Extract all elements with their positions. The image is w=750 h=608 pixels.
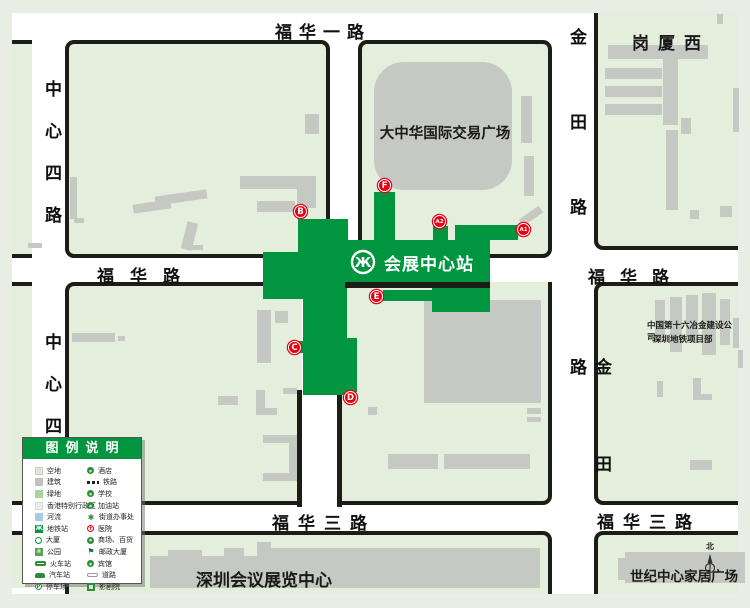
gas-station-icon xyxy=(87,502,94,509)
cinema-icon xyxy=(87,583,95,591)
street-label-jintian-lu-north: 金田路 xyxy=(564,28,589,283)
building xyxy=(605,86,662,97)
station-south-widening xyxy=(347,338,357,392)
station-east-arm-a1 xyxy=(455,225,518,240)
exit-a1-badge: A1 xyxy=(517,223,530,236)
legend-item: 酒店 xyxy=(87,465,134,477)
legend-item: 铁路 xyxy=(87,477,134,489)
legend-item-label: 宾馆 xyxy=(98,559,112,569)
building xyxy=(663,45,678,125)
building xyxy=(521,96,532,143)
building xyxy=(657,381,663,397)
exit-b-badge: B xyxy=(294,205,307,218)
shenzhen-metro-logo-icon: Ж xyxy=(350,249,376,275)
building xyxy=(693,394,712,400)
street-label-zhongxin-si-lu-north: 中心四路 xyxy=(39,80,64,248)
tower-icon xyxy=(35,537,42,544)
vacant-land-icon xyxy=(35,467,43,475)
legend-item-label: 酒店 xyxy=(98,466,112,476)
building xyxy=(368,407,377,415)
place-label-gangxia-west: 岗厦西 xyxy=(632,29,710,54)
building xyxy=(263,473,297,481)
post-building-icon xyxy=(87,548,95,556)
exit-c-badge: C xyxy=(288,341,301,354)
legend-item-label: 街道办事处 xyxy=(99,512,134,522)
legend-item: 商场、百货 xyxy=(87,535,134,547)
building xyxy=(168,550,202,558)
legend-item-label: 河流 xyxy=(47,512,61,522)
legend-item-label: 建筑 xyxy=(47,477,61,487)
building xyxy=(717,14,723,24)
legend-item-label: 学校 xyxy=(98,489,112,499)
building xyxy=(690,210,699,219)
building xyxy=(268,548,540,558)
legend-item: 道路 xyxy=(87,569,134,581)
mall-icon xyxy=(87,537,94,544)
building xyxy=(444,454,530,469)
legend-item-label: 加油站 xyxy=(98,501,119,511)
building xyxy=(257,310,271,363)
building xyxy=(605,104,662,115)
block-mideast xyxy=(594,282,738,505)
building xyxy=(666,130,678,210)
station-name: 会展中心站 xyxy=(384,250,474,275)
compass: 北 xyxy=(700,541,720,586)
building xyxy=(275,311,288,323)
building xyxy=(424,300,541,403)
railway-station-icon xyxy=(35,561,46,566)
building xyxy=(618,558,626,580)
exit-d-badge: D xyxy=(344,391,357,404)
legend-title: 图例说明 xyxy=(23,438,141,459)
hospital-icon xyxy=(87,525,94,532)
building xyxy=(527,408,541,414)
station-southeast-lobe xyxy=(432,284,490,312)
station-label-group: Ж 会展中心站 xyxy=(350,249,474,275)
building xyxy=(720,206,732,217)
place-label-plaza: 大中华国际交易广场 xyxy=(378,122,512,143)
metro-station-icon xyxy=(35,525,43,533)
building xyxy=(733,88,739,132)
legend-item-label: 火车站 xyxy=(50,559,71,569)
exit-e-badge: E xyxy=(370,290,383,303)
station-stub-e xyxy=(383,290,432,301)
building xyxy=(605,68,662,79)
building xyxy=(283,388,297,394)
parking-icon xyxy=(35,583,42,590)
legend-item: 街道办事处 xyxy=(87,511,134,523)
legend-item-label: 医院 xyxy=(98,524,112,534)
block-left-strip-top xyxy=(12,40,32,258)
compass-needle-icon xyxy=(702,552,718,582)
bus-station-icon xyxy=(35,573,45,578)
building xyxy=(72,333,115,342)
curb-center-road-east xyxy=(337,390,342,507)
guesthouse-icon xyxy=(87,560,94,567)
school-icon xyxy=(87,490,94,497)
legend-item-label: 公园 xyxy=(47,547,61,557)
legend-item-label: 邮政大厦 xyxy=(99,547,127,557)
legend-item: 学校 xyxy=(87,488,134,500)
building xyxy=(74,218,84,223)
legend-item-label: 道路 xyxy=(102,570,116,580)
legend-item: 宾馆 xyxy=(87,558,134,570)
street-label-fuhua-san-lu-west: 福华三路 xyxy=(272,509,376,534)
place-label-company-line2: 深圳地铁项目部 xyxy=(653,333,713,345)
street-label-fuhua-yi-lu: 福华一路 xyxy=(275,18,371,43)
exit-a2-badge: A2 xyxy=(433,215,446,228)
building xyxy=(527,417,541,422)
building-icon xyxy=(35,478,43,486)
legend-item-label: 地铁站 xyxy=(47,524,68,534)
building xyxy=(262,408,277,415)
building xyxy=(388,454,438,469)
building xyxy=(118,336,125,341)
road-curb-over-station xyxy=(345,282,490,288)
hk-sar-icon xyxy=(35,502,43,510)
place-label-century-home: 世纪中心家居广场 xyxy=(630,565,738,585)
building xyxy=(681,118,691,134)
road-zhongxin-stub xyxy=(42,13,62,25)
legend-item-label: 空地 xyxy=(47,466,61,476)
green-space-icon xyxy=(35,490,43,498)
legend-item-label: 大厦 xyxy=(46,535,60,545)
building xyxy=(524,156,534,196)
exit-f-badge: F xyxy=(378,179,391,192)
building xyxy=(224,548,244,558)
building xyxy=(218,396,238,405)
building xyxy=(70,177,77,219)
legend-right-column: 酒店 铁路 学校 加油站 街道办事处 医院 商场、百货 邮政大厦 宾馆 道路 影… xyxy=(87,465,134,593)
subdistrict-office-icon xyxy=(87,513,95,521)
legend-item-label: 汽车站 xyxy=(49,570,70,580)
legend-item: 邮政大厦 xyxy=(87,546,134,558)
legend-item: 加油站 xyxy=(87,500,134,512)
street-label-fuhua-lu-east: 福华路 xyxy=(588,263,684,288)
station-area-map: 福华一路 福华路 福华路 福华三路 福华三路 中心四路 中心四 金田路 金田路 … xyxy=(0,0,750,608)
river-icon xyxy=(35,513,43,521)
road-icon xyxy=(87,573,98,577)
svg-text:Ж: Ж xyxy=(355,255,372,271)
station-stub-a2 xyxy=(433,226,448,242)
legend-item: 医院 xyxy=(87,523,134,535)
legend-item-label: 绿地 xyxy=(47,489,61,499)
curb-center-road-west xyxy=(297,390,302,507)
station-arm-f xyxy=(374,192,395,242)
legend-item-label: 影剧院 xyxy=(99,582,120,592)
legend-item: 影剧院 xyxy=(87,581,134,593)
legend-item-label: 停车场 xyxy=(46,582,67,592)
legend-item-label: 铁路 xyxy=(103,477,117,487)
street-label-jintian-lu-south: 金田路 xyxy=(564,358,614,594)
legend-item-label: 商场、百货 xyxy=(98,535,133,545)
hotel-icon xyxy=(87,467,94,474)
legend-box: 图例说明 空地 建筑 绿地 香港特别行政区 河流 地铁站 大厦 公园 火车站 汽… xyxy=(22,437,142,584)
building xyxy=(690,460,712,470)
building xyxy=(257,201,295,212)
railway-icon xyxy=(87,481,99,484)
place-label-convention-center: 深圳会议展览中心 xyxy=(196,566,332,591)
building xyxy=(738,350,743,368)
park-icon xyxy=(35,548,43,556)
building xyxy=(186,245,203,250)
station-south-column xyxy=(303,252,347,395)
north-label: 北 xyxy=(700,541,720,552)
street-label-fuhua-lu-west: 福华路 xyxy=(97,262,196,287)
building xyxy=(305,114,319,134)
